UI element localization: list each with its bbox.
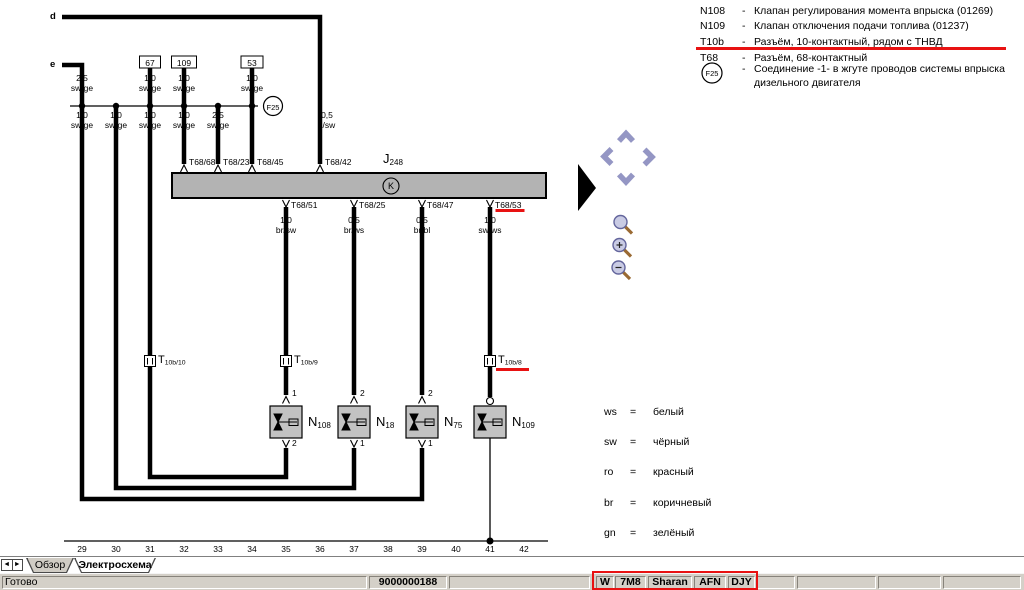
pin-number: 1: [428, 438, 433, 448]
status-empty-cell: [797, 576, 876, 589]
legend-dash: -: [742, 5, 746, 19]
track-number: 42: [512, 544, 536, 554]
wire-label: 2,5 sw/ge: [59, 74, 105, 93]
j248-control-unit-box: [172, 173, 546, 198]
legend-dash: -: [742, 36, 746, 50]
track-number: 33: [206, 544, 230, 554]
zoom-in-button[interactable]: [613, 239, 631, 257]
terminal-label: T68/53: [495, 200, 521, 210]
wire-label: 1,0 br/sw: [263, 216, 309, 235]
pan-up-button[interactable]: [619, 134, 633, 142]
component-name-n75: N75: [444, 414, 462, 430]
wire-label: 0,5 br/ws: [331, 216, 377, 235]
track-number: 32: [172, 544, 196, 554]
color-key-row: br=коричневый: [604, 497, 711, 509]
t10b-connector-icons: [145, 356, 496, 367]
track-number: 29: [70, 544, 94, 554]
legend-desc: Клапан отключения подачи топлива (01237): [754, 20, 969, 34]
terminal-label: T68/68: [189, 157, 215, 167]
wire-label: 0,5 br/bl: [399, 216, 445, 235]
legend-code: N109: [700, 20, 725, 34]
f25-connection-label: F25: [258, 103, 288, 112]
zoom-window-button[interactable]: [614, 216, 632, 234]
component-name-n108: N108: [308, 414, 331, 430]
track-number: 31: [138, 544, 162, 554]
pan-left-button[interactable]: [604, 149, 612, 164]
document-number-cell: 9000000188: [369, 576, 447, 589]
track-number: 38: [376, 544, 400, 554]
status-empty-cell: [449, 576, 590, 589]
pan-down-button[interactable]: [619, 175, 633, 183]
status-empty-cell: [878, 576, 941, 589]
legend-desc: Разъём, 10-контактный, рядом с ТНВД: [754, 36, 943, 50]
pin-number: 2: [360, 388, 365, 398]
status-empty-cell: [943, 576, 1021, 589]
legend-dash: -: [742, 20, 746, 34]
wire-label: 0,5 li/sw: [304, 111, 350, 130]
terminal-label: T68/45: [257, 157, 283, 167]
red-annotation-box: [592, 571, 758, 590]
tab-wiring-diagram-label: Электросхема: [74, 558, 156, 573]
track-number: 37: [342, 544, 366, 554]
terminal-label: T68/42: [325, 157, 351, 167]
terminal-box-label: 109: [169, 58, 199, 68]
component-name-n18: N18: [376, 414, 394, 430]
red-annotation-underlines: [496, 47, 1007, 371]
terminal-box-label: 67: [135, 58, 165, 68]
track-number: 39: [410, 544, 434, 554]
plug-open-circle: [487, 398, 494, 405]
color-key-row: sw=чёрный: [604, 436, 711, 448]
wire-label: 2,5 sw/ge: [195, 111, 241, 130]
color-key-row: ws=белый: [604, 406, 711, 418]
legend-code: T68: [700, 52, 718, 66]
thin-wires: [64, 106, 548, 541]
status-ready-cell: Готово: [2, 576, 367, 589]
node-label-e: e: [50, 59, 55, 70]
legend-desc: Клапан регулирования момента впрыска (01…: [754, 5, 993, 19]
status-empty-cell: [757, 576, 795, 589]
component-name-n109: N109: [512, 414, 535, 430]
pin-number: 1: [360, 438, 365, 448]
j248-label: J248: [383, 151, 403, 167]
wiring-diagram-window: d e 67 109 53 2,5 sw/ge 1,0 sw/ge 1,0 sw…: [0, 0, 1024, 590]
terminal-label: T68/25: [359, 200, 385, 210]
track-number: 36: [308, 544, 332, 554]
pin-number: 1: [292, 388, 297, 398]
j248-k-symbol: K: [381, 181, 401, 191]
tab-overview[interactable]: Обзор: [26, 558, 74, 573]
track-number: 34: [240, 544, 264, 554]
terminal-box-label: 53: [237, 58, 267, 68]
color-key-row: gn=зелёный: [604, 527, 711, 539]
pin-number: 2: [428, 388, 433, 398]
connector-label-t10b-8: T10b/8: [498, 354, 522, 367]
legend-desc: Соединение -1- в жгуте проводов системы …: [754, 63, 1022, 90]
terminal-label: T68/51: [291, 200, 317, 210]
pan-right-button[interactable]: [645, 150, 653, 165]
terminal-label: T68/47: [427, 200, 453, 210]
wire-label: 1,0 sw/ge: [161, 74, 207, 93]
zoom-out-button[interactable]: [612, 261, 630, 279]
track-number: 30: [104, 544, 128, 554]
wire-label: 1,0 sw/ws: [467, 216, 513, 235]
track-number: 35: [274, 544, 298, 554]
legend-f25-code: F25: [697, 69, 727, 78]
tab-wiring-diagram[interactable]: Электросхема: [74, 558, 156, 573]
connector-label-t10b-10: T10b/10: [158, 354, 186, 367]
status-bar: Готово 9000000188 W 7M8 Sharan AFN DJY: [0, 573, 1024, 590]
track-number: 40: [444, 544, 468, 554]
tab-scroll-buttons: ◄ ►: [1, 559, 23, 571]
legend-dash: -: [742, 63, 746, 77]
track-number: 41: [478, 544, 502, 554]
legend-code: N108: [700, 5, 725, 19]
pin-number: 2: [292, 438, 297, 448]
connector-label-t10b-9: T10b/9: [294, 354, 318, 367]
black-right-arrow-icon: [578, 164, 596, 211]
terminal-label: T68/23: [223, 157, 249, 167]
color-key-row: ro=красный: [604, 466, 711, 478]
wire-label: 1,0 sw/ge: [229, 74, 275, 93]
tab-overview-label: Обзор: [26, 558, 74, 573]
tab-scroll-left-icon[interactable]: ◄: [2, 560, 12, 570]
sheet-tab-bar: ◄ ► Обзор Электросхема: [0, 556, 1024, 573]
tab-scroll-right-icon[interactable]: ►: [12, 560, 23, 570]
node-label-d: d: [50, 11, 56, 22]
legend-code: T10b: [700, 36, 724, 50]
